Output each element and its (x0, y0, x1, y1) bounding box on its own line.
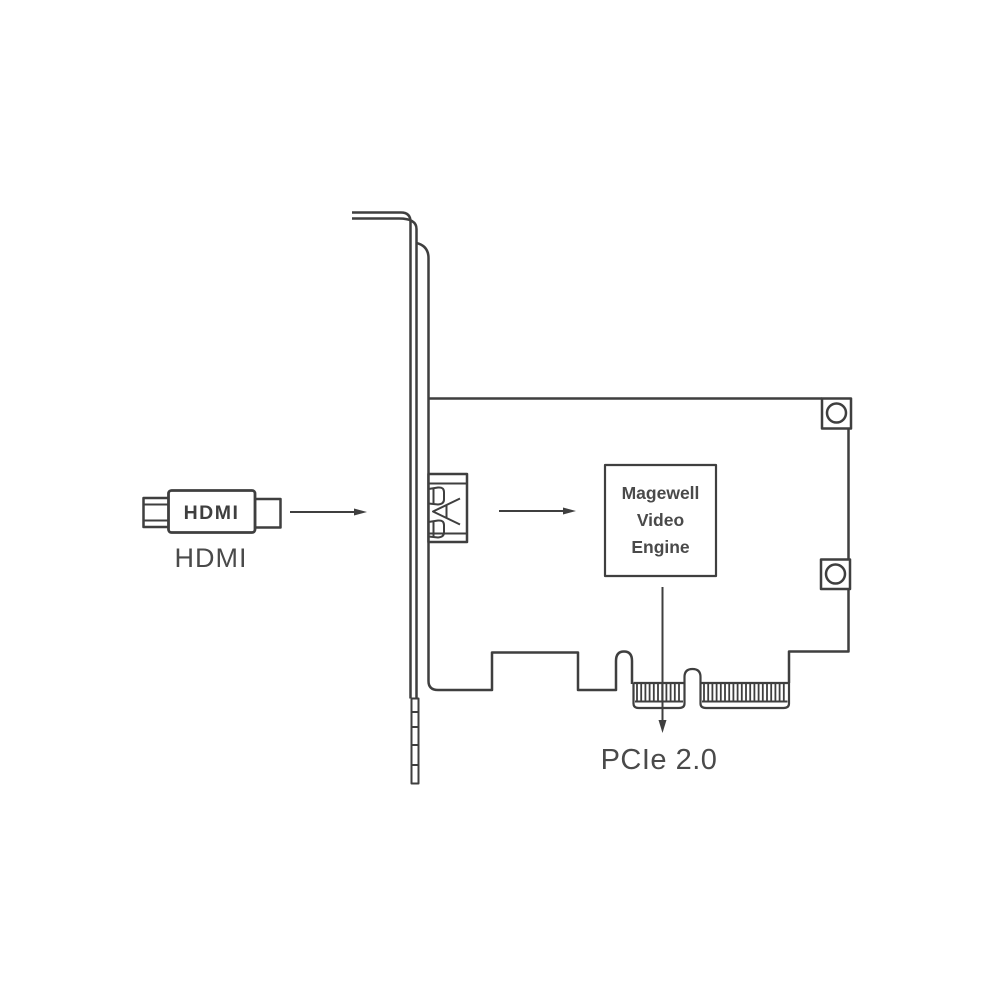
pcie-label: PCIe 2.0 (601, 744, 718, 776)
diagram-strokes: HDMI HDMI (144, 213, 852, 784)
hdmi-connector-icon: HDMI HDMI (144, 491, 281, 574)
finger-band-long-hatch (704, 684, 784, 701)
hdmi-plug-label: HDMI (175, 543, 248, 573)
card-left-bottom-edge (417, 243, 633, 690)
arrow-right-icon (499, 508, 576, 515)
pcie-bracket (352, 213, 419, 784)
finger-band-short-hatch (637, 684, 679, 701)
diagram-canvas: HDMI HDMI (0, 0, 1000, 1000)
hdmi-plug-logo: HDMI (184, 502, 240, 524)
arrow-right-icon (290, 509, 367, 516)
arrow-down-icon (659, 587, 667, 733)
hdmi-pcie-card-diagram: HDMI HDMI (0, 0, 1000, 1000)
hdmi-plug-tip (255, 499, 281, 528)
card-right-bottom-edge (789, 429, 849, 684)
hdmi-cable-end (144, 498, 171, 527)
video-engine-line-1: Magewell (622, 483, 700, 503)
screw-tab-top (822, 399, 851, 429)
bracket-outer-edge (352, 213, 411, 699)
bracket-inner-edge (352, 219, 417, 699)
edge-key-notch (685, 669, 701, 683)
video-engine-line-3: Engine (631, 537, 690, 557)
hdmi-port-icon (429, 474, 468, 542)
gold-fingers (634, 669, 790, 708)
screw-tab-bottom (821, 560, 850, 590)
video-engine-box: Magewell Video Engine (605, 465, 716, 576)
video-engine-line-2: Video (637, 510, 684, 530)
